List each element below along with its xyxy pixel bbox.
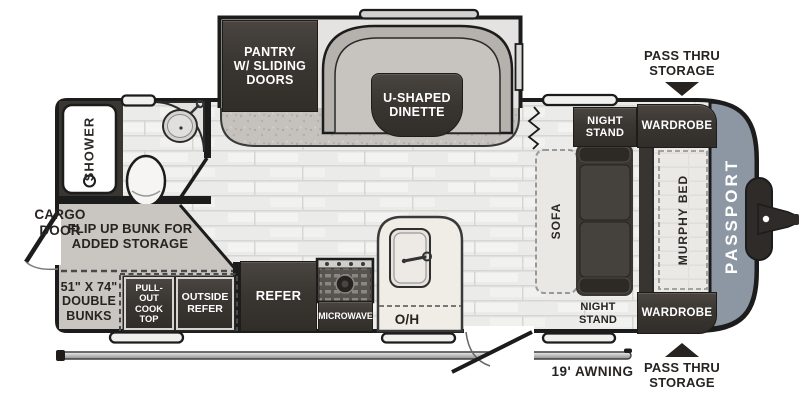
overhead-cabinet-label: O/H <box>387 312 427 328</box>
bath-sink-bowl <box>168 115 193 138</box>
cargo-door-label: CARGO DOOR <box>10 207 110 238</box>
stove-knob <box>337 262 341 266</box>
window <box>122 96 155 106</box>
night-stand-bottom-label: NIGHT STAND <box>556 301 640 326</box>
bath-sink-drain <box>179 126 182 129</box>
pantry-box: PANTRY W/ SLIDING DOORS <box>222 20 318 112</box>
awning-bar <box>61 352 631 359</box>
compartment-door <box>110 333 183 343</box>
sofa-armrest <box>579 147 630 162</box>
window <box>543 95 617 105</box>
dinette-table: U-SHAPED DINETTE <box>371 73 463 137</box>
compartment-door <box>543 334 615 343</box>
stove-burner-center <box>342 281 349 288</box>
stove-knob <box>325 262 329 266</box>
pass-thru-storage-top-label: PASS THRU STORAGE <box>620 49 744 79</box>
passport-brand-logo: PASSPORT <box>722 158 742 274</box>
toilet <box>127 156 165 206</box>
bath-right-wall <box>204 101 211 158</box>
hitch-pin <box>763 216 769 222</box>
compartment-door <box>382 334 455 343</box>
hitch-tip <box>792 214 799 225</box>
wardrobe-bottom: WARDROBE <box>637 292 717 334</box>
wardrobe-top: WARDROBE <box>637 104 717 148</box>
double-bunks-label: 51" X 74" DOUBLE BUNKS <box>50 280 128 323</box>
pass-thru-arrow-down-icon <box>665 82 699 96</box>
sofa-armrest <box>579 278 630 293</box>
slide-window <box>516 44 523 90</box>
shower-label: SHOWER <box>82 117 97 182</box>
pass-thru-storage-bottom-label: PASS THRU STORAGE <box>620 361 744 391</box>
refrigerator-box: REFER <box>240 261 317 332</box>
kitchen-faucet-base <box>402 259 406 263</box>
pull-out-cook-top-box: PULL-OUT COOK TOP <box>124 277 174 330</box>
murphy-bed-label: MURPHY BED <box>676 175 690 265</box>
sofa-cushion <box>580 165 630 220</box>
sofa-label: SOFA <box>549 203 563 240</box>
stove-knob <box>361 262 365 266</box>
slide-out-handle <box>360 10 478 19</box>
sofa-cushion <box>580 222 630 277</box>
murphy-bed-frame <box>639 146 653 295</box>
rv-floorplan: PANTRY W/ SLIDING DOORS U-SHAPED DINETTE… <box>0 0 800 400</box>
pass-thru-arrow-up-icon <box>665 343 699 357</box>
microwave-box: MICROWAVE <box>318 301 373 332</box>
stove-knob <box>349 262 353 266</box>
awning-bar-end-cap <box>56 350 65 361</box>
awning-bar-bracket <box>624 349 632 354</box>
night-stand-top: NIGHT STAND <box>573 107 637 147</box>
outside-refer-box: OUTSIDE REFER <box>176 277 234 330</box>
